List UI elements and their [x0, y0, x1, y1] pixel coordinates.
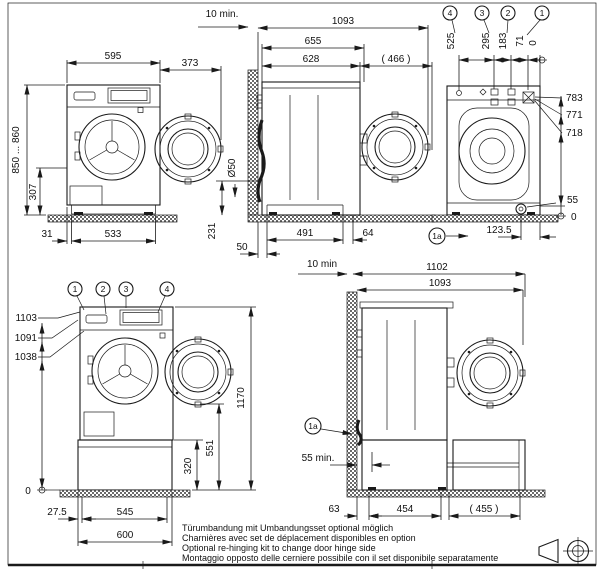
callout-2: 2 [101, 284, 106, 294]
callout-1a: 1a [432, 231, 442, 241]
floor-hatch [432, 215, 558, 222]
callout-3: 3 [480, 8, 485, 18]
floor-hatch [347, 490, 545, 497]
washer-door-open [155, 114, 223, 184]
dim-label-307: 307 [28, 183, 39, 200]
dim-label-zero-left: 0 [25, 486, 31, 497]
dim-label-p0: 0 [528, 40, 539, 46]
washer-front-outline [80, 307, 173, 440]
drain-hose [357, 420, 361, 445]
projection-cone-icon [539, 540, 558, 563]
electrical-connection-icon [523, 92, 534, 103]
note-it: Montaggio opposto delle cerniere possibi… [182, 553, 498, 563]
view-side-pedestal: 10 min 1102 1093 55 min. 1a 63 454 ( 455… [298, 259, 545, 520]
wall-hatch [347, 292, 357, 490]
dim-label-771: 771 [566, 110, 583, 121]
callout-4: 4 [165, 284, 170, 294]
dim-label-drain-offset: 123.5 [486, 225, 511, 236]
valve-icon [480, 89, 486, 95]
dim-label-body-depth: 628 [303, 54, 320, 65]
dim-label-width: 595 [105, 51, 122, 62]
view-side: 10 min. 1093 655 628 ( 466 ) Ø50 231 50 … [198, 9, 435, 258]
dim-label-floor-clearance: 55 min. [302, 453, 335, 464]
drawing-canvas: 595 373 850 ... 860 307 31 533 [0, 0, 600, 572]
dim-label-depth-with-door: 1093 [429, 278, 452, 289]
dim-label-55: 55 [567, 195, 579, 206]
dim-label-1091: 1091 [15, 333, 38, 344]
dim-label-p2: 183 [498, 32, 509, 49]
connection-2-icon [508, 89, 515, 95]
washer-side-outline [257, 82, 367, 215]
washer-rear-outline [447, 86, 540, 215]
projection-symbol [539, 537, 593, 565]
dim-label-drain-diameter: Ø50 [227, 158, 238, 177]
washer-front-outline [67, 85, 160, 215]
callout-2: 2 [506, 8, 511, 18]
dim-label-base-width: 600 [117, 530, 134, 541]
dim-label-wall-gap: 10 min [307, 259, 337, 270]
dim-label-718: 718 [566, 128, 583, 139]
dim-label-plinth-inset: 31 [41, 229, 53, 240]
dimensions-front-pedestal: 1103 1091 1038 0 320 551 1170 27.5 545 6… [15, 307, 256, 546]
view-rear: 4 3 2 1 525 295 183 71 0 783 771 718 [429, 6, 583, 244]
dim-label-plinth-width: 533 [105, 229, 122, 240]
washer-side-outline [357, 302, 454, 445]
dim-label-height-range: 850 ... 860 [11, 126, 22, 174]
floor-hatch [60, 490, 190, 497]
dim-label-door-height: 551 [205, 439, 216, 456]
notes-block: Türumbandung mit Umbandungsset optional … [182, 523, 498, 563]
dim-label-door-depth: 373 [182, 58, 199, 69]
dim-label-front-offset: 64 [362, 228, 374, 239]
washer-door-open [165, 337, 233, 407]
note-en: Optional re-hinging kit to change door h… [182, 543, 376, 553]
connection-4-icon [457, 91, 462, 96]
view-front-pedestal: 1 2 3 4 1103 1091 1038 0 320 551 1170 [15, 282, 256, 546]
dimensions-side-pedestal: 10 min 1102 1093 55 min. 1a 63 454 ( 455… [298, 259, 525, 520]
dim-label-door-swing: ( 466 ) [382, 54, 411, 65]
projection-target-icon [563, 537, 593, 565]
callout-4: 4 [448, 8, 453, 18]
dim-label-overhang: 27.5 [47, 507, 67, 518]
callout-1: 1 [73, 284, 78, 294]
dim-label-body-depth: 454 [397, 504, 414, 515]
dim-label-drawer-depth: ( 455 ) [470, 504, 499, 515]
drain-hose [258, 120, 264, 202]
dim-label-drain-height: 231 [207, 222, 218, 239]
washer-door-closed [75, 114, 145, 180]
dim-label-1038: 1038 [15, 352, 38, 363]
callouts-front-pedestal: 1 2 3 4 [68, 282, 174, 314]
technical-drawing: 595 373 850 ... 860 307 31 533 [0, 0, 600, 572]
floor-hatch [248, 215, 435, 222]
callouts-rear: 4 3 2 1 [443, 6, 549, 35]
note-de: Türumbandung mit Umbandungsset optional … [182, 523, 393, 533]
connection-3-icon [491, 89, 498, 95]
dim-label-p3: 295 [481, 32, 492, 49]
dim-label-wall-gap: 10 min. [206, 9, 239, 20]
drain-outlet-icon [516, 204, 526, 214]
dim-label-p1: 71 [515, 35, 526, 47]
dim-label-base-depth: 491 [297, 228, 314, 239]
dim-label-zero-right: 0 [571, 212, 577, 223]
dim-label-p4: 525 [446, 32, 457, 49]
pedestal [78, 440, 172, 490]
dim-label-feet-width: 545 [117, 507, 134, 518]
dim-label-depth-with-door: 655 [305, 36, 322, 47]
washer-door-open-side [457, 338, 525, 408]
dim-label-total-depth: 1093 [332, 16, 355, 27]
dim-label-total-depth: 1102 [426, 262, 448, 273]
callout-3: 3 [124, 284, 129, 294]
dim-label-total-height: 1170 [236, 387, 247, 409]
dim-label-rear-clearance: 50 [236, 242, 248, 253]
note-fr: Charnières avec set de déplacement dispo… [182, 533, 416, 543]
dim-label-pedestal-height: 320 [183, 457, 194, 474]
callout-1a: 1a [308, 421, 318, 431]
dim-label-1103: 1103 [15, 313, 37, 324]
washer-door-closed [88, 338, 158, 404]
washer-door-open-side [362, 112, 430, 182]
callout-1: 1 [540, 8, 545, 18]
dim-label-783: 783 [566, 93, 583, 104]
view-front: 595 373 850 ... 860 307 31 533 [11, 51, 223, 244]
dim-label-rear-offset: 63 [328, 504, 340, 515]
